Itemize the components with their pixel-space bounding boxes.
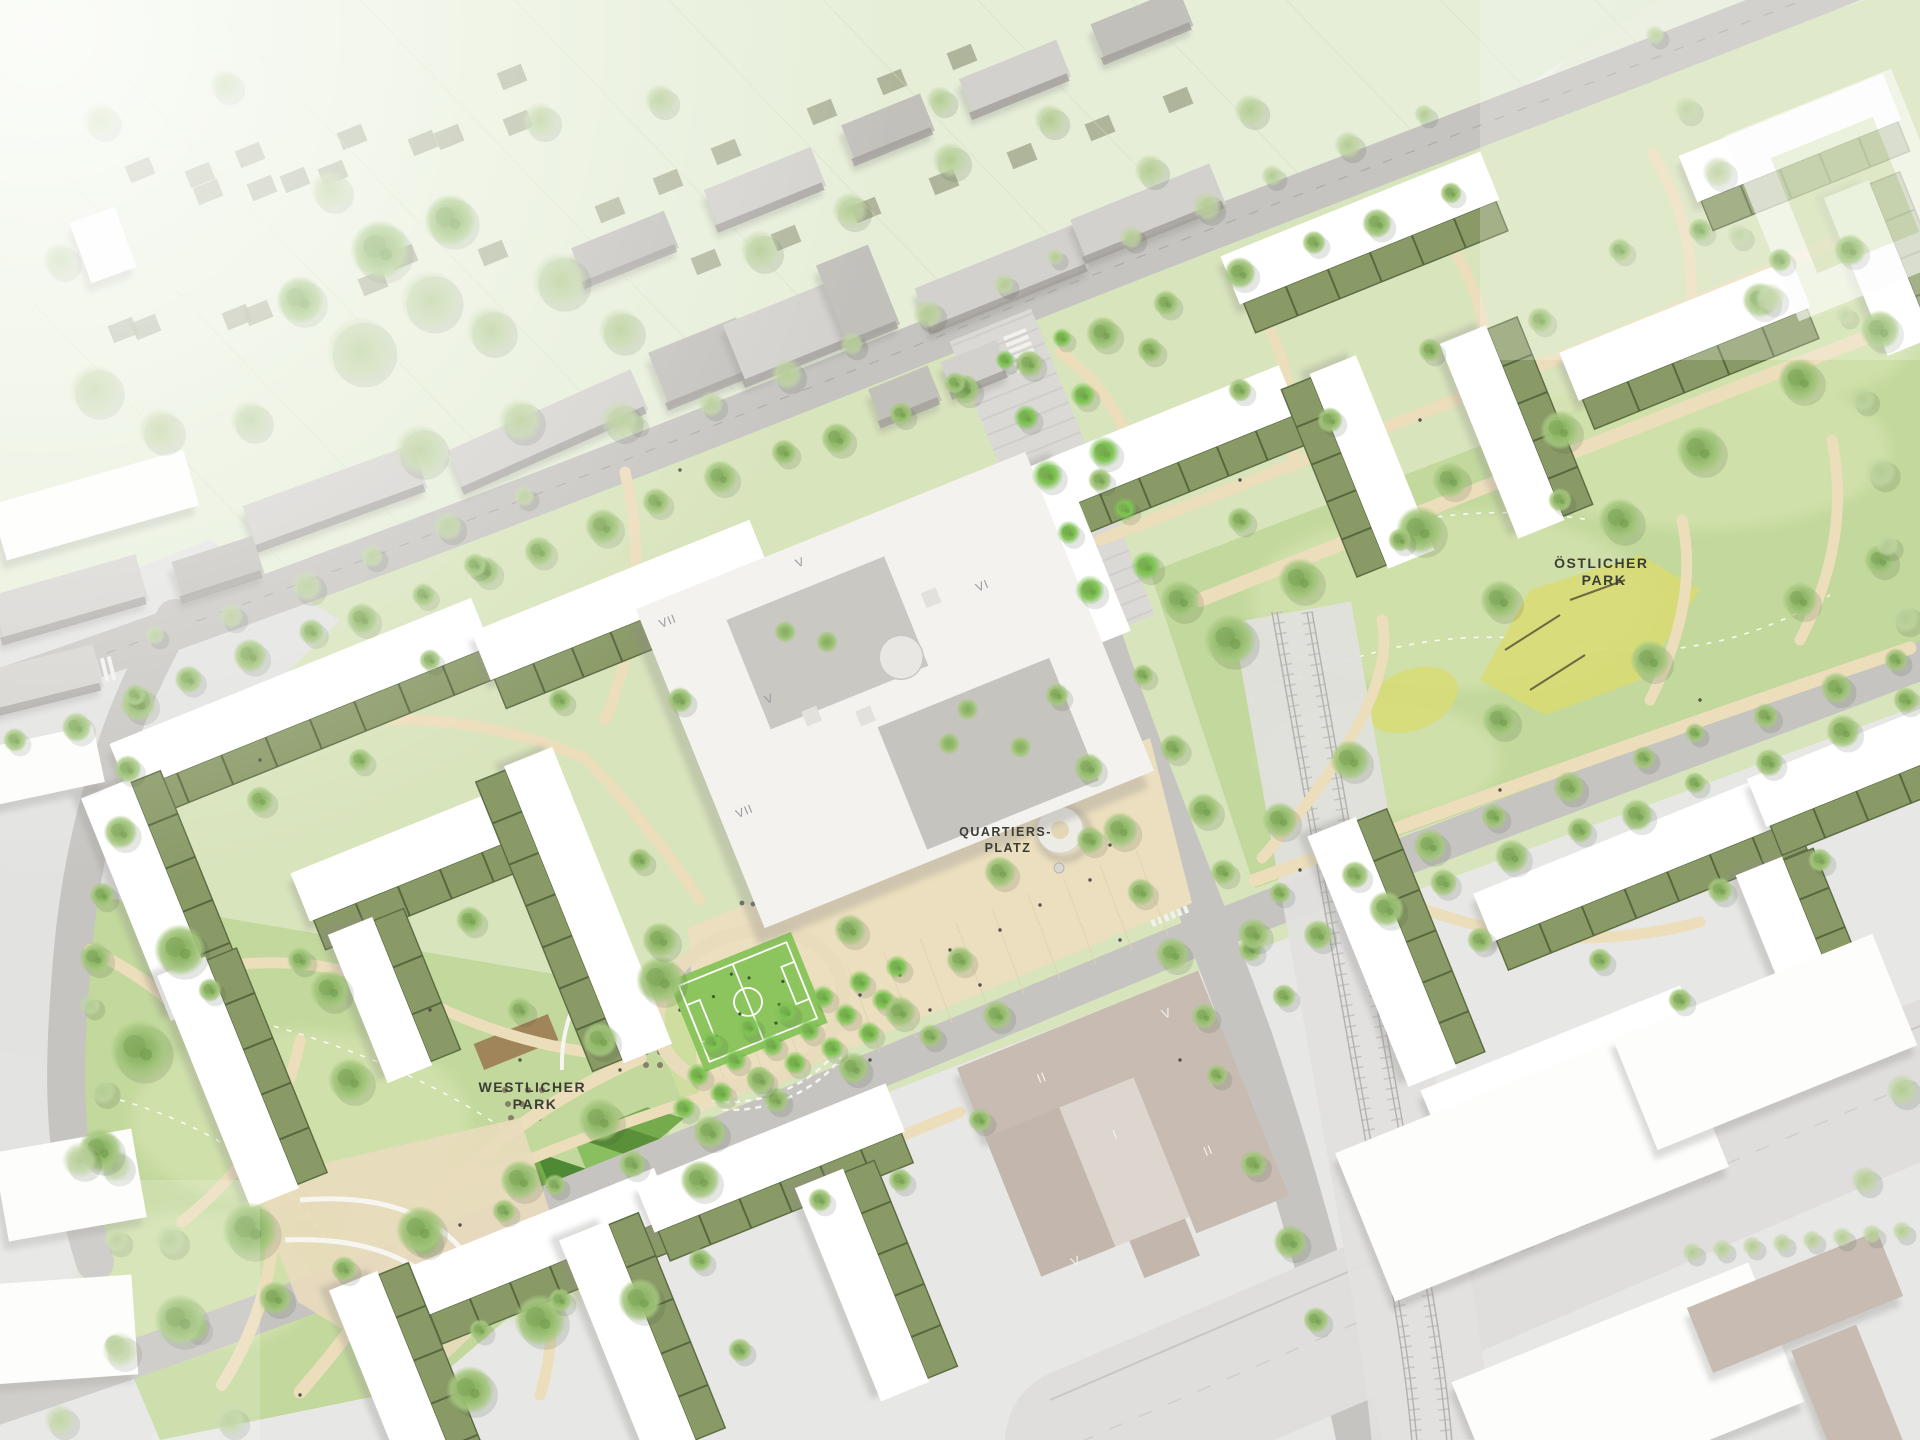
tree-crown (926, 86, 954, 114)
tree-texture (860, 981, 865, 986)
tree-crown (1862, 1224, 1882, 1244)
tree-texture (1430, 845, 1437, 852)
tree-texture (760, 1079, 766, 1085)
tree-texture (1204, 1015, 1209, 1020)
topright-fade (1480, 0, 1920, 360)
tree-texture (1766, 715, 1771, 720)
tree-texture (1820, 859, 1825, 864)
tree-texture (850, 929, 856, 935)
tree-texture (210, 989, 215, 994)
tree-texture (749, 1026, 754, 1031)
tree-texture (1240, 389, 1245, 394)
tree-texture (1284, 995, 1289, 1000)
tree-texture (1150, 349, 1155, 354)
tree-texture (350, 1079, 359, 1088)
tree-texture (1800, 379, 1809, 388)
tree-texture (470, 919, 476, 925)
tree-texture (1512, 855, 1519, 862)
tree-texture (1217, 1074, 1221, 1078)
tree-texture (1600, 959, 1605, 964)
tree-texture (772, 1044, 777, 1049)
tree-texture (1173, 747, 1179, 753)
tree-texture (1350, 759, 1358, 767)
tree-texture (1141, 891, 1147, 897)
tree-texture (853, 1067, 859, 1073)
tree-texture (869, 1032, 874, 1037)
tree-texture (1444, 882, 1450, 888)
tree-texture (823, 996, 828, 1001)
tree-texture (1089, 767, 1095, 773)
tree-crown (1802, 1230, 1822, 1250)
tree-texture (901, 413, 906, 418)
person-dot (1088, 878, 1091, 881)
tree-texture (600, 1039, 607, 1046)
tree-crown (1034, 104, 1066, 136)
tree-crown (1772, 1233, 1792, 1253)
tree-texture (1103, 333, 1110, 340)
tree-texture (520, 1179, 528, 1187)
tree-texture (1644, 757, 1649, 762)
tree-crown (1832, 1227, 1852, 1247)
tree-texture (1569, 786, 1575, 792)
tree-texture (1280, 892, 1284, 896)
tree-texture (1800, 599, 1807, 606)
person-dot (868, 1058, 871, 1061)
tree-texture (700, 1259, 705, 1264)
tree-texture (102, 894, 107, 899)
tree-texture (1143, 674, 1147, 678)
bottomleft-fade (0, 1180, 260, 1440)
tree-texture (1120, 829, 1127, 836)
tree-texture (1451, 192, 1455, 196)
tree-texture (1254, 1163, 1260, 1169)
tree-texture (1000, 871, 1006, 877)
person-dot (618, 1068, 621, 1071)
tree-texture (640, 859, 645, 864)
tree-texture (809, 1029, 814, 1034)
tree-texture (555, 1184, 559, 1188)
tree-texture (1057, 694, 1062, 699)
tree-texture (795, 1062, 800, 1067)
person-dot (1698, 698, 1701, 701)
tree-texture (1494, 816, 1499, 821)
tree-texture (640, 1299, 649, 1308)
tree-texture (721, 1092, 726, 1097)
play-equipment (505, 1101, 511, 1107)
tree-texture (740, 1349, 745, 1354)
tree-texture (1560, 429, 1568, 437)
tree-texture (1172, 953, 1179, 960)
tree-crown (993, 273, 1015, 295)
tree-texture (955, 382, 959, 386)
tree-texture (660, 979, 670, 989)
tree-texture (1420, 529, 1430, 539)
tree-texture (1430, 349, 1435, 354)
tree-texture (1386, 908, 1393, 915)
tree-texture (680, 699, 685, 704)
tree-texture (1314, 242, 1319, 247)
tree-texture (1695, 733, 1699, 737)
tree-texture (1240, 272, 1246, 278)
tree-crown (1134, 154, 1166, 186)
person-dot (928, 1008, 931, 1011)
tree-texture (700, 1179, 708, 1187)
tree-texture (1580, 830, 1585, 835)
tree-texture (520, 1009, 525, 1014)
tree-texture (1100, 479, 1105, 484)
tree-texture (1180, 599, 1188, 607)
tree-texture (1005, 360, 1009, 364)
tree-texture (1125, 508, 1130, 513)
tree-texture (330, 989, 338, 997)
tree-crown (1334, 131, 1362, 159)
tree-texture (540, 1319, 550, 1329)
tree-texture (960, 959, 966, 965)
tree-texture (712, 1041, 717, 1046)
tree-crown (1851, 1166, 1879, 1194)
tree-texture (897, 966, 902, 971)
tree-texture (1637, 814, 1643, 820)
tree-texture (1104, 451, 1110, 457)
tree-texture (1048, 474, 1054, 480)
tree-texture (1029, 363, 1035, 369)
tree-texture (1500, 599, 1508, 607)
tree-texture (1650, 659, 1658, 667)
tree-texture (600, 1119, 609, 1128)
tree-crown (1886, 1074, 1918, 1106)
tree-texture (300, 959, 305, 964)
tree-crown (1046, 248, 1064, 266)
tree-texture (710, 1131, 717, 1138)
tree-texture (1843, 730, 1850, 737)
tree-texture (632, 1163, 638, 1169)
tree-texture (100, 1149, 109, 1158)
person-dot (428, 1008, 431, 1011)
tree-texture (980, 1119, 985, 1124)
tree-texture (837, 438, 843, 444)
tree-texture (1083, 394, 1088, 399)
tree-crown (1119, 225, 1143, 249)
person-dot (1038, 903, 1041, 906)
play-equipment (657, 1062, 663, 1068)
tree-texture (1316, 1319, 1321, 1324)
site-plan: VII V VI VII V V II I II V QUARTIERS- PL… (0, 0, 1920, 1440)
tree-texture (1700, 449, 1710, 459)
tree-texture (1290, 1241, 1297, 1248)
tree-texture (470, 1389, 480, 1399)
tree-texture (997, 1014, 1003, 1020)
tree-texture (1500, 719, 1507, 726)
tree-crown (1712, 1239, 1732, 1259)
tree-texture (344, 1268, 349, 1273)
tree-texture (660, 939, 667, 946)
tree-texture (1069, 532, 1074, 537)
tree-texture (180, 949, 190, 959)
tree-texture (1896, 659, 1901, 664)
tree-texture (1620, 519, 1629, 528)
tree-texture (1062, 338, 1066, 342)
tree-crown (88, 1077, 116, 1105)
tree-texture (1695, 782, 1699, 786)
tree-texture (95, 957, 101, 963)
tree-crown (1865, 456, 1897, 488)
tree-texture (900, 1179, 905, 1184)
tree-texture (1836, 687, 1842, 693)
tree-texture (1906, 699, 1911, 704)
tree-texture (846, 1014, 851, 1019)
tree-texture (820, 1199, 825, 1204)
person-dot (518, 1058, 521, 1061)
tree-texture (900, 1011, 906, 1017)
tree-crown (1875, 533, 1899, 557)
tree-texture (931, 1035, 936, 1040)
person-dot (1238, 478, 1241, 481)
tree-crown (1890, 603, 1920, 633)
tree-texture (1254, 933, 1260, 939)
person-dot (998, 928, 1001, 931)
tree-texture (1166, 302, 1171, 307)
tree-texture (1330, 419, 1335, 424)
tree-texture (1090, 839, 1096, 845)
tree-crown (1414, 104, 1434, 124)
tree-crown (62, 1142, 98, 1178)
person-dot (978, 983, 981, 986)
tree-crown (1892, 1221, 1912, 1241)
person-dot (1498, 788, 1501, 791)
tree-crown (1682, 1242, 1702, 1262)
person-dot (1118, 938, 1121, 941)
tree-texture (1146, 565, 1152, 571)
tree-texture (275, 1297, 282, 1304)
tree-texture (1720, 889, 1725, 894)
tree-texture (1280, 819, 1287, 826)
tree-crown (1742, 1236, 1762, 1256)
person-dot (1178, 1058, 1181, 1061)
tree-crown (1850, 386, 1876, 412)
tree-texture (735, 1059, 740, 1064)
tree-crown (932, 142, 968, 178)
tree-texture (776, 1099, 781, 1104)
tree-texture (1480, 939, 1485, 944)
tree-texture (832, 1047, 837, 1052)
masterplan-canvas: VII V VI VII V V II I II V QUARTIERS- PL… (0, 0, 1920, 1440)
tree-texture (140, 1049, 152, 1061)
person-dot (458, 1223, 461, 1226)
tree-texture (1223, 871, 1228, 876)
tree-texture (1355, 874, 1361, 880)
tree-crown (79, 994, 101, 1016)
tree-crown (1192, 191, 1222, 221)
tree-texture (420, 1229, 430, 1239)
person-dot (298, 1393, 301, 1396)
tree-texture (1026, 417, 1031, 422)
tree-texture (1400, 539, 1405, 544)
tree-texture (786, 1011, 791, 1016)
tree-texture (698, 1074, 703, 1079)
tree-texture (1230, 639, 1240, 649)
tree-texture (1769, 762, 1775, 768)
person-dot (1298, 868, 1301, 871)
tree-texture (1680, 999, 1685, 1004)
tree-texture (1560, 499, 1565, 504)
tree-texture (480, 1329, 484, 1333)
tree-crown (1261, 165, 1283, 187)
tree-texture (560, 1299, 565, 1304)
tree-texture (1300, 579, 1309, 588)
person-dot (1418, 418, 1421, 421)
fountain (1054, 863, 1064, 873)
tree-texture (1240, 519, 1245, 524)
tree-crown (913, 299, 943, 329)
tree-texture (1090, 589, 1096, 595)
tree-texture (1377, 223, 1383, 229)
tree-texture (1204, 809, 1211, 816)
tree-texture (504, 1210, 509, 1215)
tree-crown (1234, 94, 1266, 126)
tree-texture (1318, 934, 1324, 940)
tree-texture (1880, 559, 1886, 565)
tree-texture (684, 1107, 689, 1112)
tree-texture (1450, 479, 1457, 486)
